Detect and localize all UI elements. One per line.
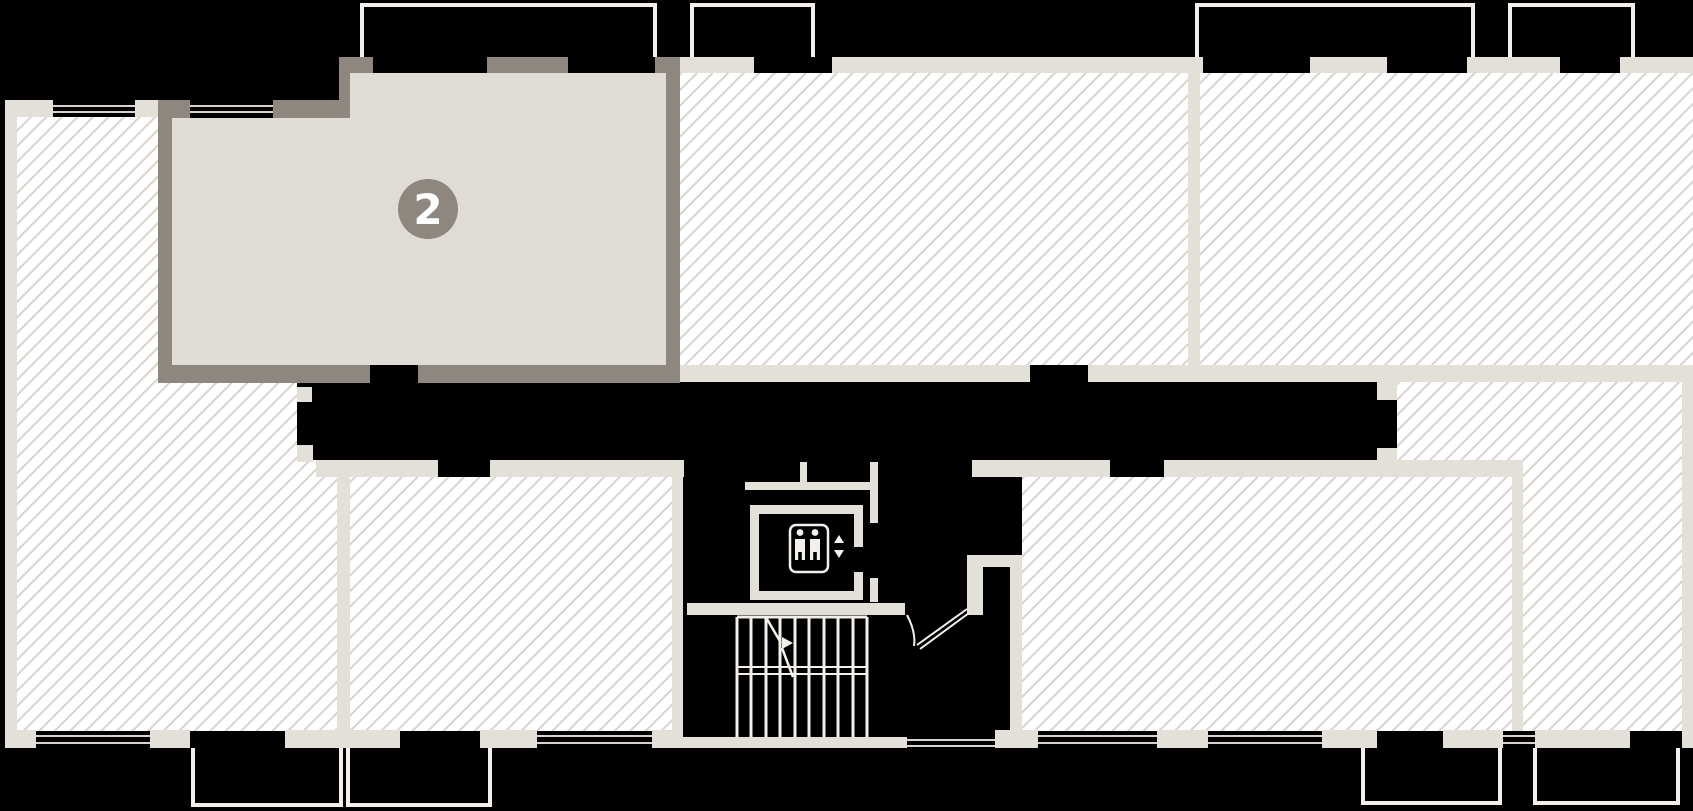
balcony-bottom-2 [348,748,490,805]
person-icon [810,529,820,560]
balcony-bottom-3 [1363,748,1500,803]
door-swing [907,609,969,649]
room-region-north-east[interactable] [1200,73,1693,365]
floorplan-stage: 2 [0,0,1693,811]
floorplan-canvas: 2 [0,0,1693,811]
balcony-top-4 [1510,5,1633,57]
room-region-south-east[interactable] [1022,477,1512,731]
balcony-bottom-4 [1535,748,1678,803]
balcony-top-1 [362,5,655,57]
elevator-shaft [750,505,863,600]
balcony-top-3 [1197,5,1473,57]
triangle-up-icon [834,535,844,543]
triangle-down-icon [834,550,844,558]
unit-badge[interactable]: 2 [398,179,458,239]
staircase [737,617,867,737]
elevator-icon [790,525,844,572]
room-region-south-center[interactable] [350,477,672,731]
unit-badge-label: 2 [413,185,442,234]
room-region-north-center[interactable] [680,73,1188,365]
person-icon [795,529,805,560]
balcony-top-2 [692,5,813,57]
balcony-bottom-1 [193,748,341,805]
